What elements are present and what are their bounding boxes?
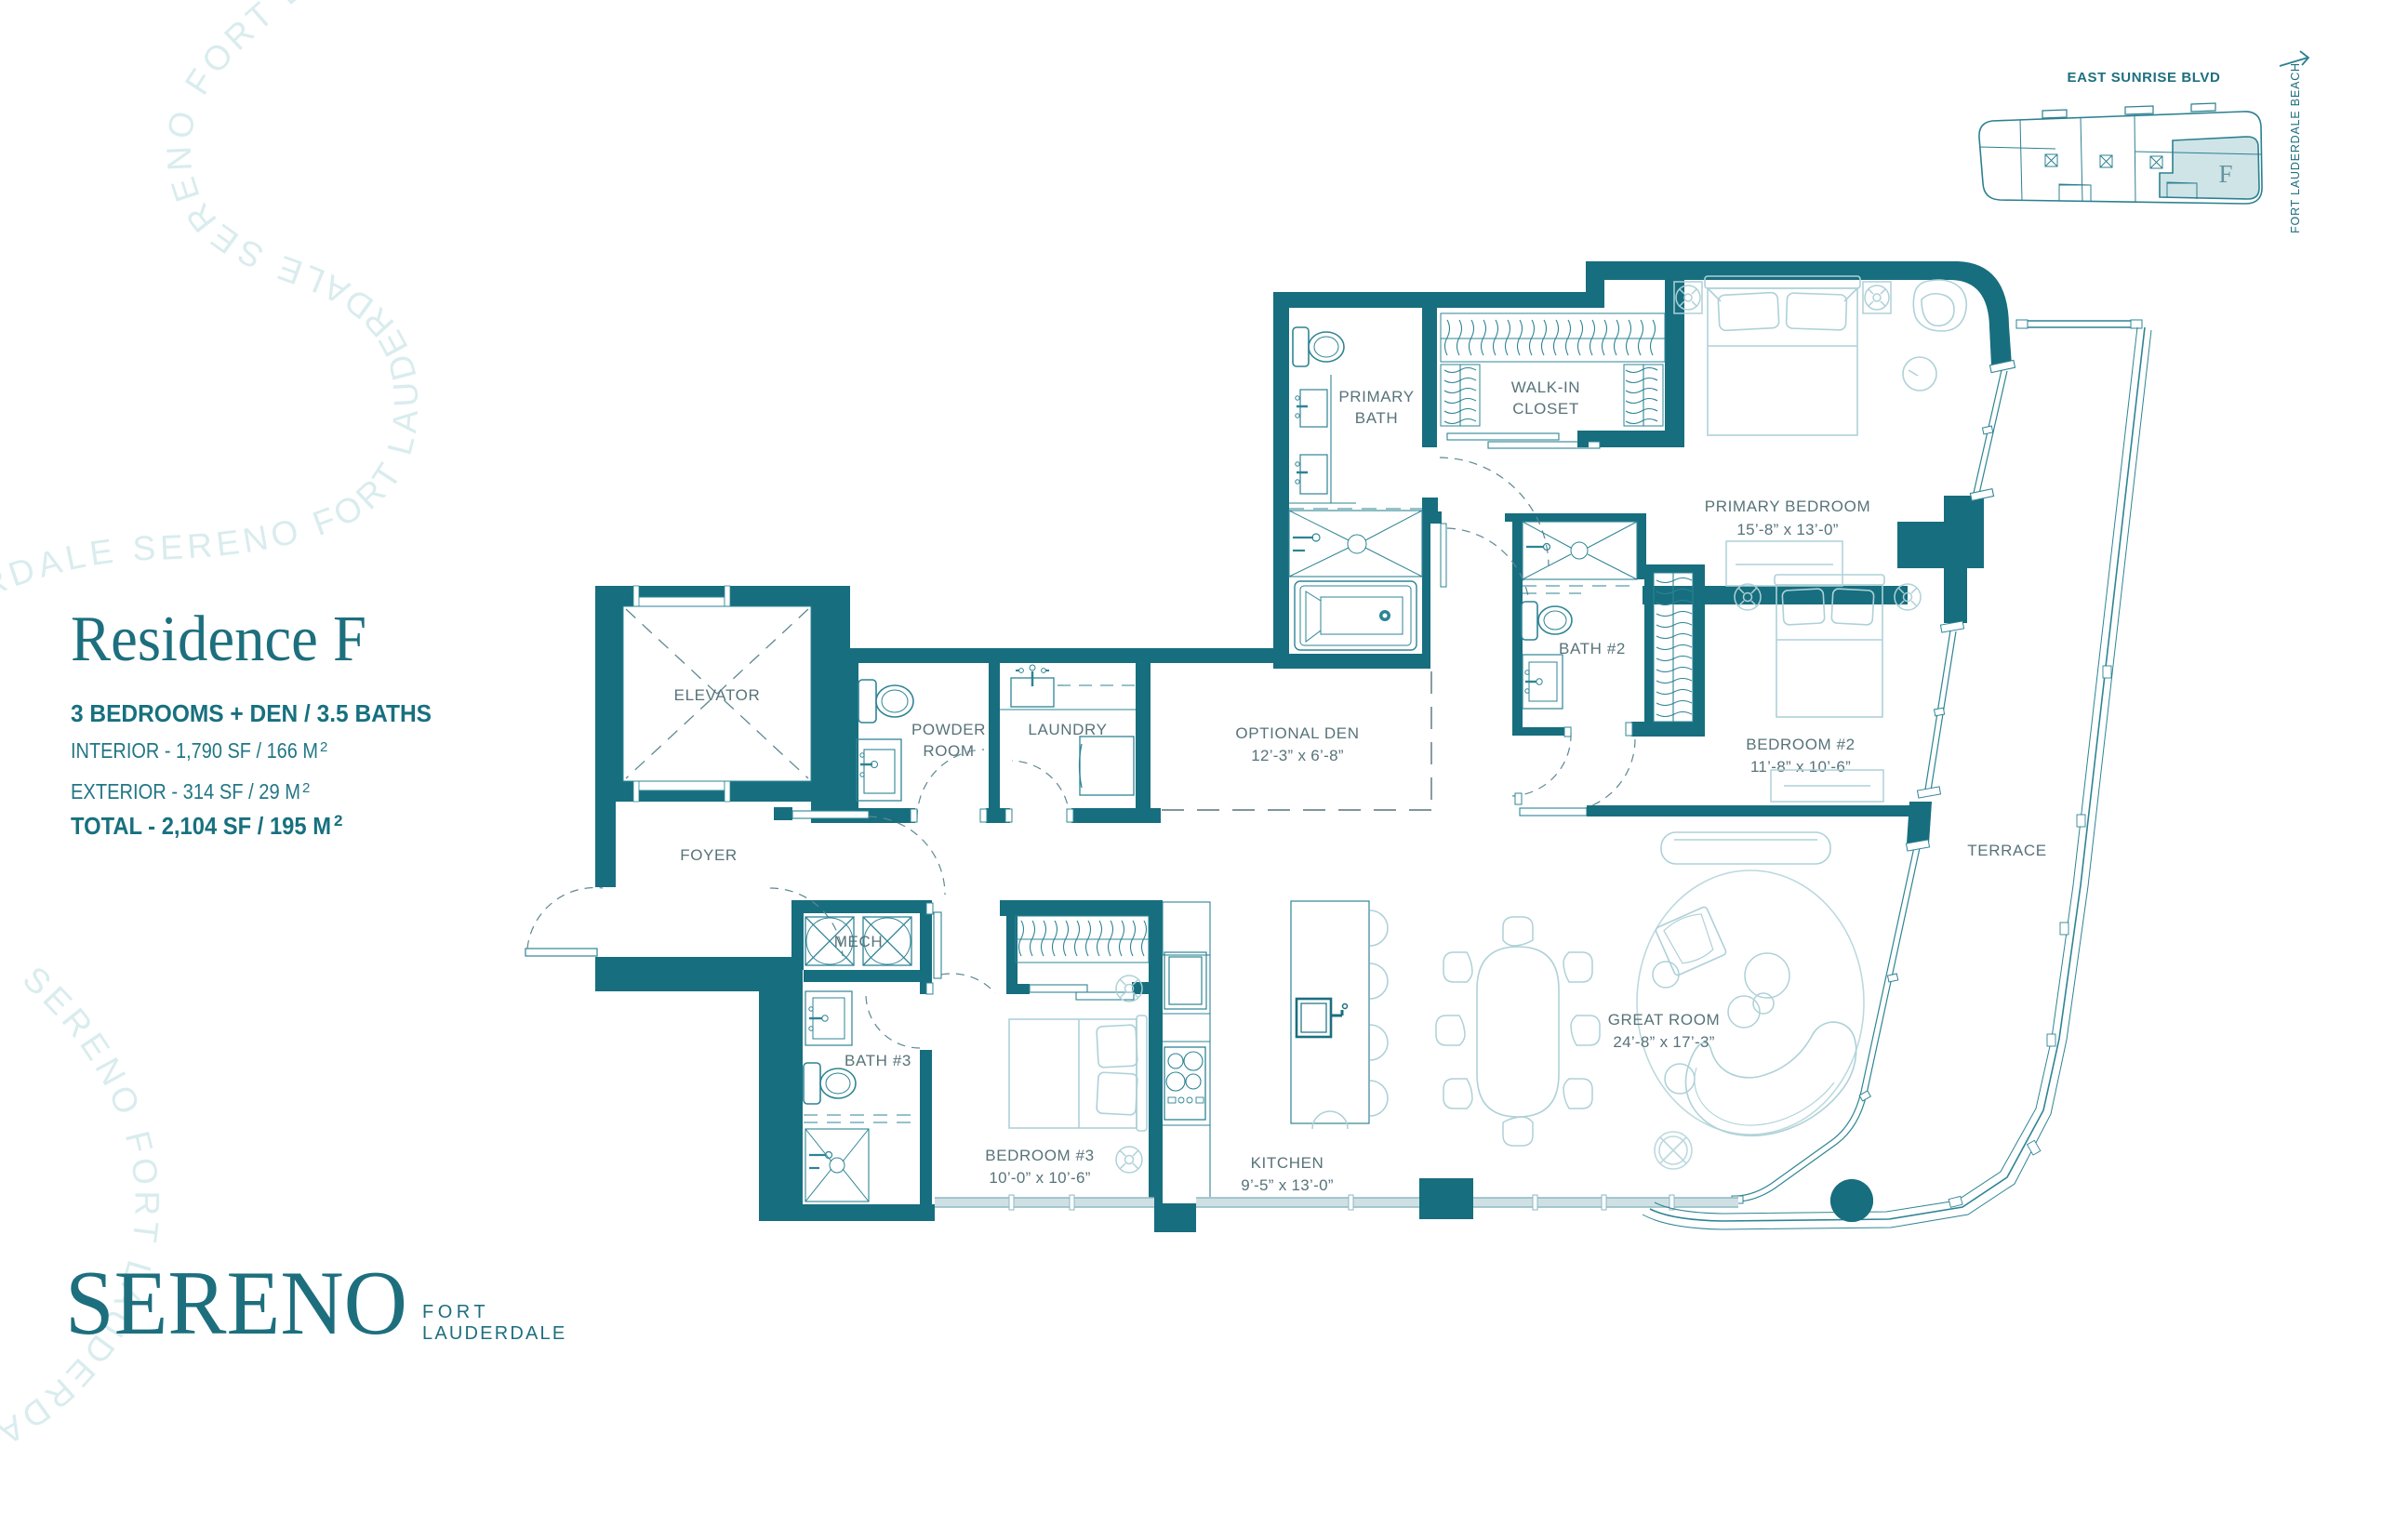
svg-text:MECH: MECH xyxy=(834,933,883,950)
svg-text:BEDROOM #2: BEDROOM #2 xyxy=(1746,736,1855,753)
svg-text:ROOM: ROOM xyxy=(923,742,974,760)
svg-text:2: 2 xyxy=(302,780,310,796)
svg-text:10’-0” x 10’-6”: 10’-0” x 10’-6” xyxy=(989,1169,1090,1187)
svg-text:GREAT ROOM: GREAT ROOM xyxy=(1608,1011,1721,1029)
svg-text:12’-3” x 6’-8”: 12’-3” x 6’-8” xyxy=(1251,747,1344,764)
svg-text:TERRACE: TERRACE xyxy=(1967,842,2046,859)
svg-text:FOYER: FOYER xyxy=(680,846,738,864)
svg-text:EAST SUNRISE BLVD: EAST SUNRISE BLVD xyxy=(2068,70,2221,86)
svg-text:CLOSET: CLOSET xyxy=(1512,400,1579,418)
svg-text:SERENO: SERENO xyxy=(65,1253,407,1354)
svg-text:BATH: BATH xyxy=(1355,409,1398,427)
svg-text:EXTERIOR - 314 SF / 29 M: EXTERIOR - 314 SF / 29 M xyxy=(71,779,300,803)
svg-text:PRIMARY: PRIMARY xyxy=(1338,388,1414,405)
svg-text:KITCHEN: KITCHEN xyxy=(1251,1154,1324,1172)
svg-text:BATH #3: BATH #3 xyxy=(845,1052,911,1069)
svg-text:INTERIOR - 1,790 SF / 166 M: INTERIOR - 1,790 SF / 166 M xyxy=(71,738,318,763)
svg-text:BATH #2: BATH #2 xyxy=(1559,640,1626,657)
svg-text:FORT LAUDERDALE BEACH: FORT LAUDERDALE BEACH xyxy=(2289,62,2302,233)
svg-text:ELEVATOR: ELEVATOR xyxy=(674,686,761,704)
svg-text:9’-5” x 13’-0”: 9’-5” x 13’-0” xyxy=(1241,1176,1334,1194)
svg-text:TOTAL - 2,104 SF / 195 M: TOTAL - 2,104 SF / 195 M xyxy=(71,812,331,840)
svg-text:POWDER: POWDER xyxy=(911,721,986,738)
svg-text:PRIMARY BEDROOM: PRIMARY BEDROOM xyxy=(1705,498,1870,515)
svg-text:FORT: FORT xyxy=(422,1302,489,1322)
svg-text:BEDROOM #3: BEDROOM #3 xyxy=(985,1147,1094,1164)
svg-text:24’-8” x 17’-3”: 24’-8” x 17’-3” xyxy=(1613,1033,1714,1051)
svg-text:OPTIONAL DEN: OPTIONAL DEN xyxy=(1235,724,1359,742)
svg-text:LAUNDRY: LAUNDRY xyxy=(1028,721,1107,738)
svg-text:LAUDERDALE: LAUDERDALE xyxy=(422,1323,566,1344)
svg-text:WALK-IN: WALK-IN xyxy=(1511,378,1580,396)
svg-text:3 BEDROOMS + DEN / 3.5 BATHS: 3 BEDROOMS + DEN / 3.5 BATHS xyxy=(71,699,432,727)
svg-text:2: 2 xyxy=(320,739,327,755)
svg-text:2: 2 xyxy=(334,812,342,830)
svg-text:Residence F: Residence F xyxy=(71,604,366,675)
svg-text:15’-8” x 13’-0”: 15’-8” x 13’-0” xyxy=(1736,521,1838,538)
svg-text:F: F xyxy=(2218,160,2232,188)
svg-text:11’-8” x 10’-6”: 11’-8” x 10’-6” xyxy=(1750,758,1851,776)
